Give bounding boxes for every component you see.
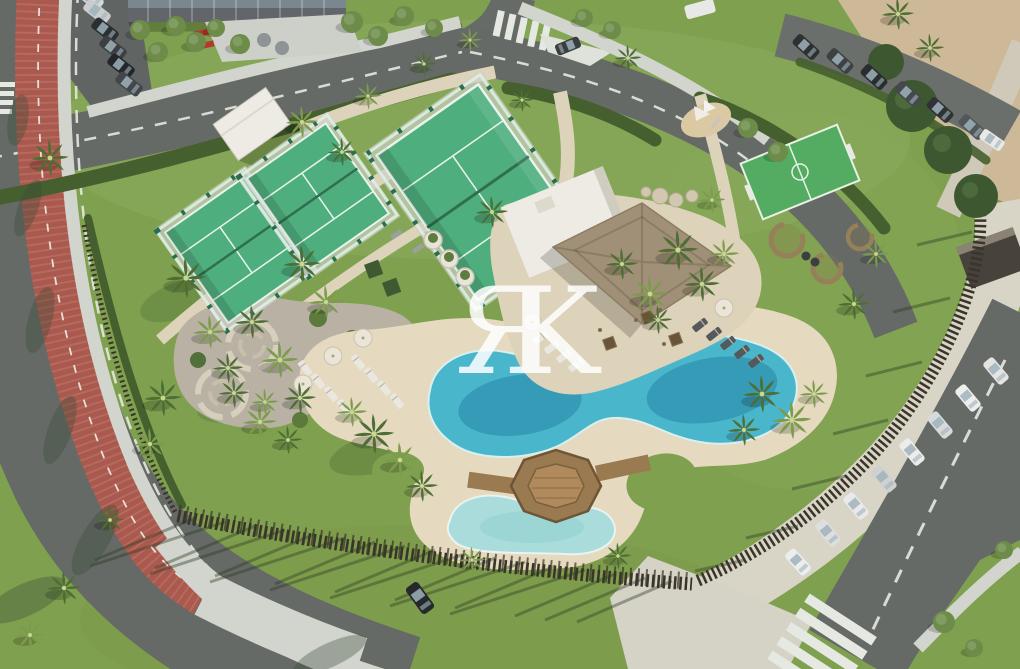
umbrella [354,329,372,347]
cafe-parasol [275,41,289,55]
bean-bag [802,252,811,261]
umbrella [715,299,733,317]
bean-bag [811,258,820,267]
aerial-scene: ЯK [0,0,1020,669]
seating-pod [848,225,872,249]
cafe-parasol [257,33,271,47]
umbrella [294,375,312,393]
aerial-resort-render: ЯK [0,0,1020,669]
umbrella [324,347,342,365]
seating-pod [771,224,803,256]
